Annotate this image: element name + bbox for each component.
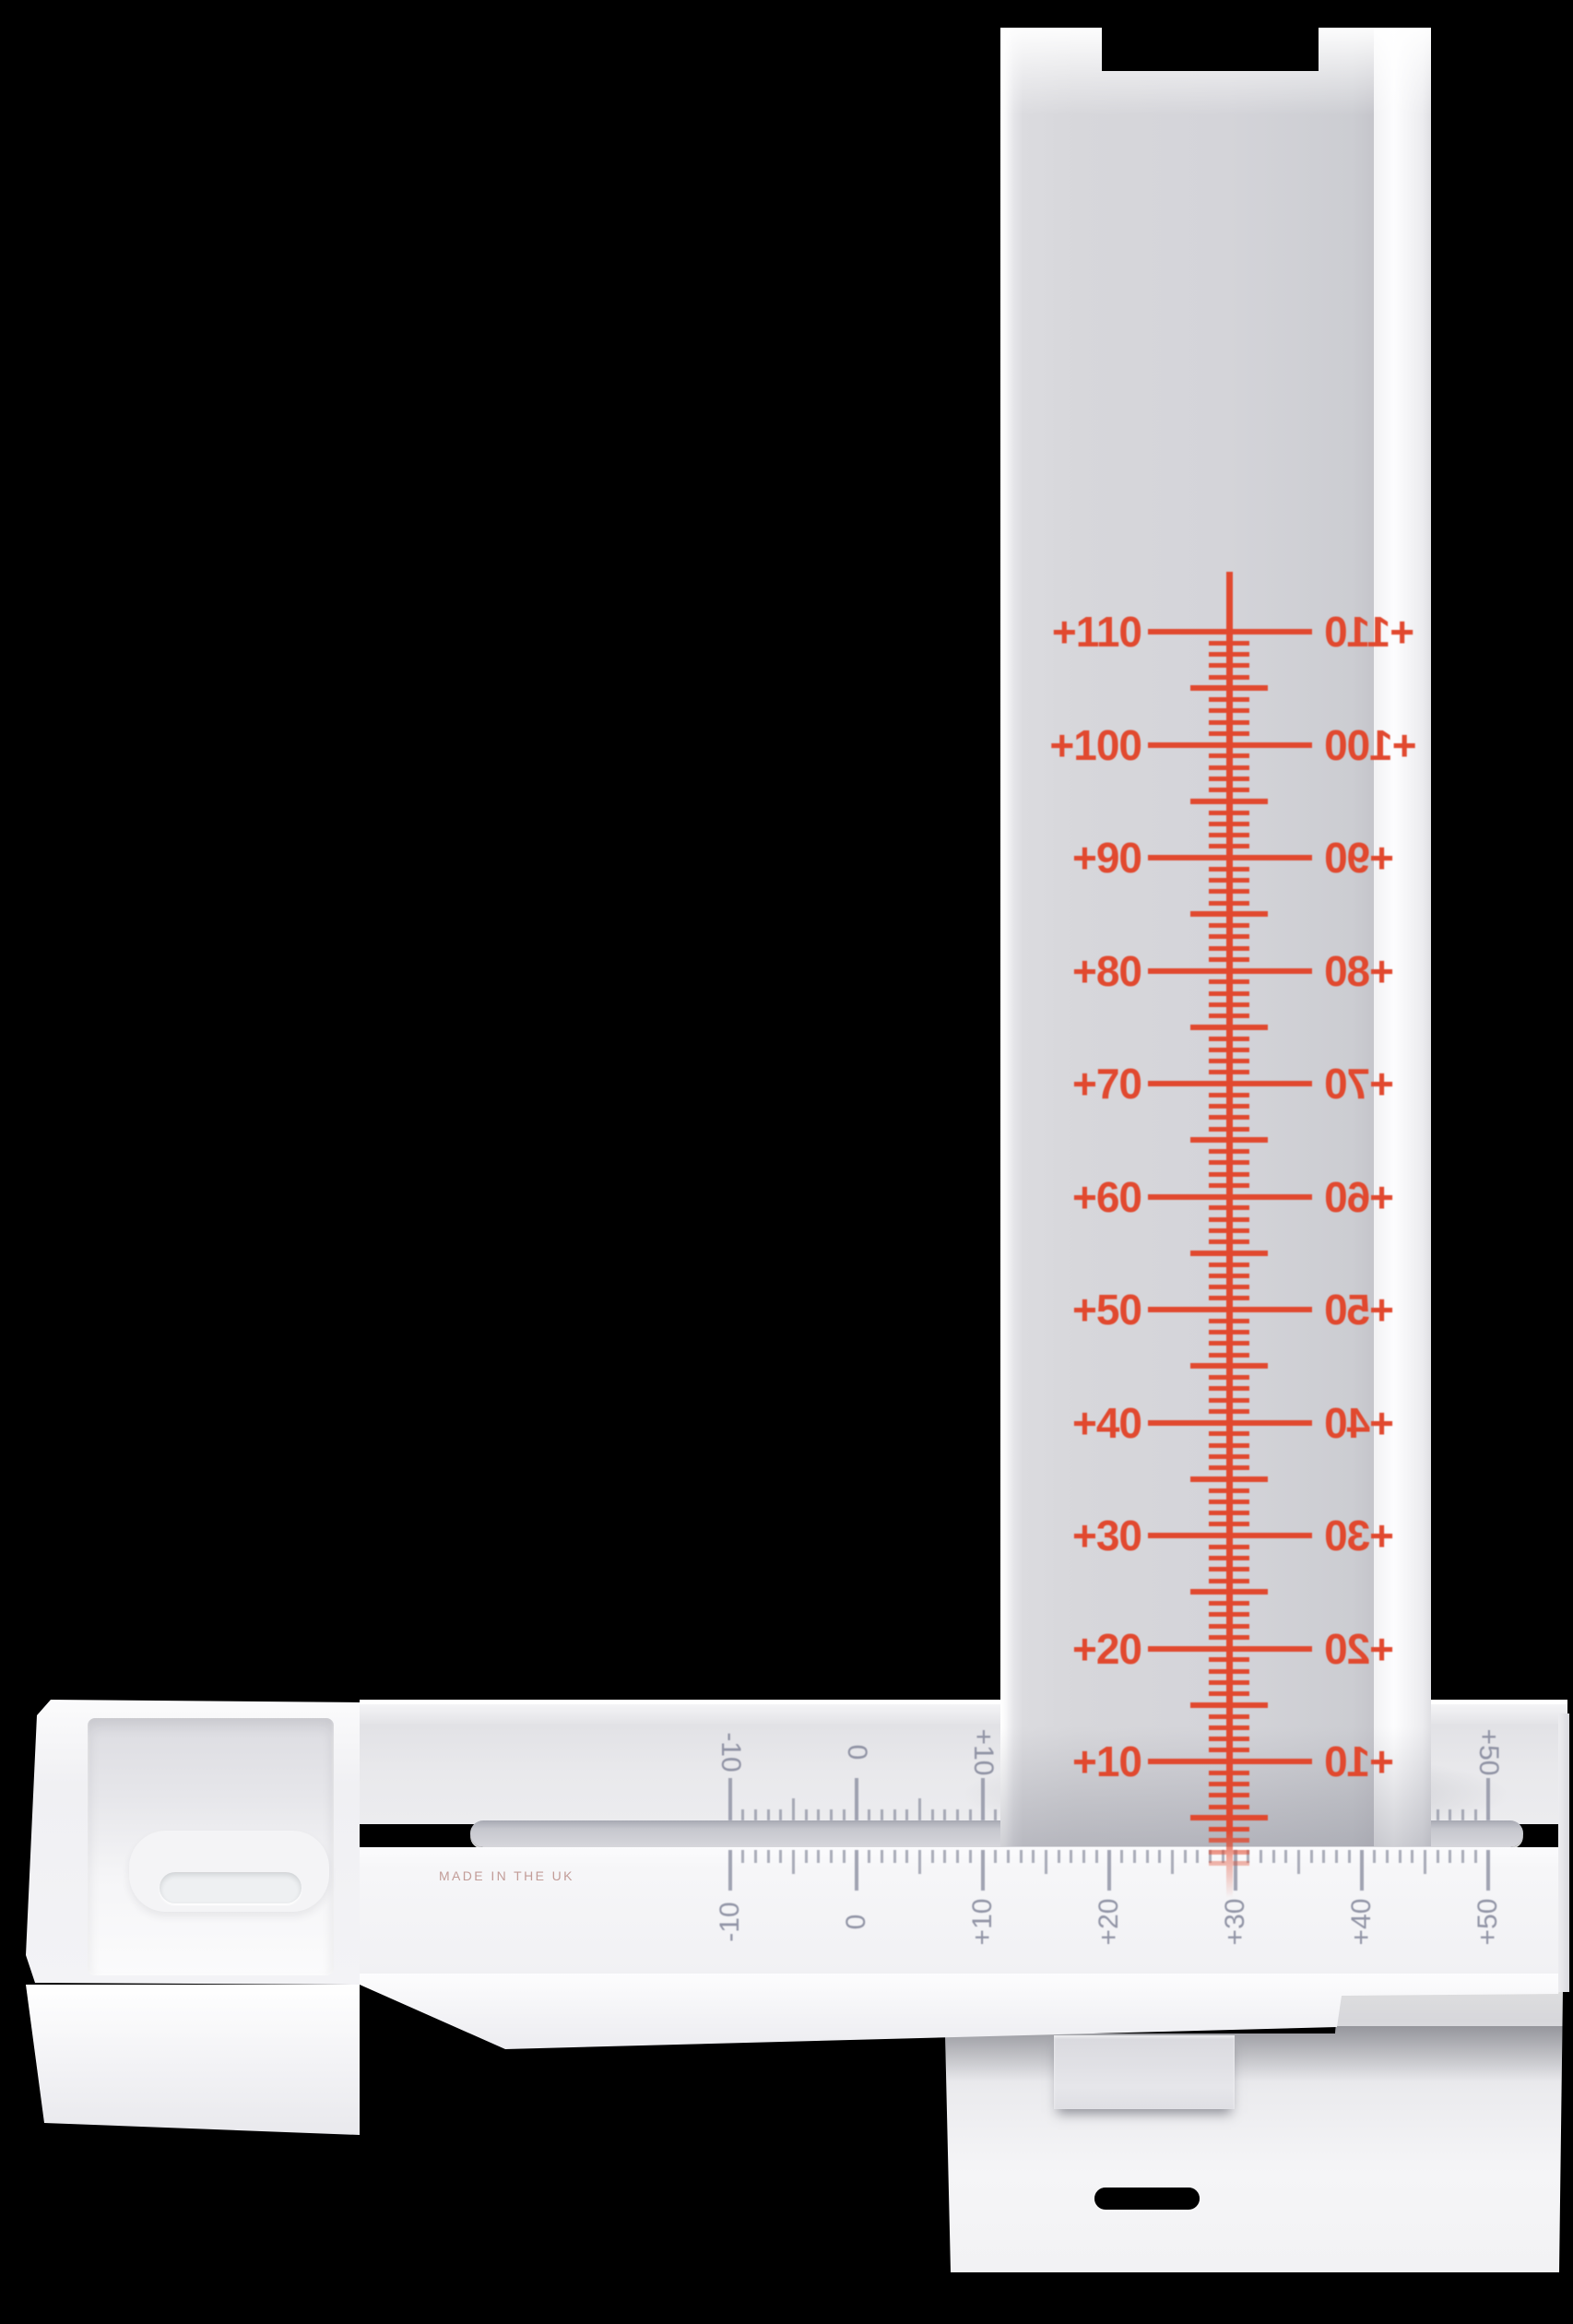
scale-tick xyxy=(1209,753,1249,758)
scale-label-left: +100 xyxy=(1049,719,1141,771)
scale-tick xyxy=(1209,1353,1249,1358)
scale-tick xyxy=(1209,1319,1249,1323)
scale-tick xyxy=(1209,1375,1249,1380)
scale-tick xyxy=(1209,1070,1249,1074)
scale-tick xyxy=(1209,1115,1249,1120)
scale-tick xyxy=(1209,1488,1249,1493)
scale-tick xyxy=(1209,1691,1249,1696)
scale-tick xyxy=(1209,663,1249,668)
scale-tick xyxy=(1209,822,1249,826)
scale-tick xyxy=(1190,1476,1268,1482)
scale-tick xyxy=(1209,957,1249,962)
scale-tick xyxy=(1209,1612,1249,1617)
scale-tick xyxy=(1209,1228,1249,1233)
scale-tick xyxy=(1209,1037,1249,1041)
scale-label-right-mirrored: +60 xyxy=(1325,1171,1394,1223)
scale-tick xyxy=(1209,946,1249,951)
scale-tick xyxy=(1209,1454,1249,1459)
scale-tick xyxy=(1190,685,1268,691)
scale-tick xyxy=(1190,1251,1268,1256)
scale-tick xyxy=(1209,1127,1249,1132)
scale-tick xyxy=(1209,1850,1249,1855)
scale-tick xyxy=(1209,1149,1249,1154)
scale-major-line xyxy=(1148,1533,1312,1538)
scale-tick xyxy=(1209,1556,1249,1560)
scale-tick xyxy=(1209,1093,1249,1097)
scale-tick xyxy=(1190,1137,1268,1143)
scale-label-right-mirrored: +90 xyxy=(1325,832,1394,883)
scale-major-line xyxy=(1148,1420,1312,1426)
scale-tick xyxy=(1209,765,1249,770)
scale-tick xyxy=(1209,833,1249,837)
scale-label-left: +20 xyxy=(1072,1623,1141,1675)
scale-label-left: +40 xyxy=(1072,1397,1141,1449)
scale-tick xyxy=(1209,878,1249,883)
scale-tick xyxy=(1209,1296,1249,1300)
scale-label-left: +50 xyxy=(1072,1284,1141,1335)
scale-tick xyxy=(1209,1861,1249,1866)
scale-tick xyxy=(1209,1341,1249,1346)
scale-tick xyxy=(1190,1363,1268,1369)
scale-tick xyxy=(1209,697,1249,702)
scale-major-line xyxy=(1148,629,1312,634)
scale-tick xyxy=(1209,1239,1249,1244)
scale-tick xyxy=(1209,1827,1249,1832)
scale-label-right-mirrored: +10 xyxy=(1325,1736,1394,1787)
scale-major-line xyxy=(1148,1081,1312,1086)
photo-scene: -100+10+20+30+40+50 MADE IN THE UK -100+… xyxy=(0,0,1573,2324)
scale-tick xyxy=(1209,708,1249,713)
scale-tick xyxy=(1209,1601,1249,1606)
scale-tick xyxy=(1209,1443,1249,1448)
scale-tick xyxy=(1209,901,1249,906)
scale-label-right-mirrored: +80 xyxy=(1325,945,1394,997)
scale-tick xyxy=(1209,889,1249,894)
scale-major-line xyxy=(1148,855,1312,860)
scale-tick xyxy=(1209,1771,1249,1775)
scale-tick xyxy=(1209,1398,1249,1403)
scale-label-left: +70 xyxy=(1072,1058,1141,1109)
scale-tick xyxy=(1190,1702,1268,1708)
scale-tick xyxy=(1209,1172,1249,1177)
scale-tick xyxy=(1209,979,1249,984)
scale-tick xyxy=(1209,675,1249,680)
scale-tick xyxy=(1209,1714,1249,1719)
scale-tick xyxy=(1209,1104,1249,1109)
scale-tick xyxy=(1209,1205,1249,1210)
scale-tick xyxy=(1209,867,1249,871)
scale-tick xyxy=(1209,1465,1249,1470)
scale-label-right-mirrored: +40 xyxy=(1325,1397,1394,1449)
scale-tick xyxy=(1190,1589,1268,1595)
scale-tick xyxy=(1209,1500,1249,1504)
scale-label-left: +80 xyxy=(1072,945,1141,997)
scale-tick xyxy=(1209,1285,1249,1289)
scale-tick xyxy=(1209,1838,1249,1843)
scale-label-right-mirrored: +100 xyxy=(1325,719,1417,771)
scale-tick xyxy=(1209,991,1249,996)
scale-tick xyxy=(1209,1579,1249,1583)
scale-tick xyxy=(1209,1409,1249,1414)
scale-tick xyxy=(1209,1793,1249,1797)
scale-tick xyxy=(1209,1160,1249,1165)
scale-tick xyxy=(1209,1782,1249,1786)
scale-tick xyxy=(1209,777,1249,781)
scale-major-line xyxy=(1148,1307,1312,1312)
scale-tick xyxy=(1209,788,1249,792)
column-scale-layer: +110+110+100+100+90+90+80+80+70+70+60+60… xyxy=(0,0,1573,2324)
scale-tick xyxy=(1209,1059,1249,1063)
scale-tick xyxy=(1209,1217,1249,1222)
scale-tick xyxy=(1190,911,1268,917)
scale-tick xyxy=(1209,1737,1249,1741)
scale-label-right-mirrored: +30 xyxy=(1325,1510,1394,1561)
scale-tick xyxy=(1209,1263,1249,1267)
scale-tick xyxy=(1209,1635,1249,1640)
scale-tick xyxy=(1209,1657,1249,1662)
scale-major-line xyxy=(1148,742,1312,748)
scale-tick xyxy=(1190,1025,1268,1030)
scale-tick xyxy=(1209,811,1249,815)
scale-label-left: +110 xyxy=(1052,606,1141,658)
scale-tick xyxy=(1209,1545,1249,1549)
scale-label-left: +60 xyxy=(1072,1171,1141,1223)
scale-tick xyxy=(1209,1002,1249,1007)
scale-tick xyxy=(1209,1048,1249,1052)
scale-tick xyxy=(1190,799,1268,804)
scale-tick xyxy=(1209,1274,1249,1278)
scale-label-left: +90 xyxy=(1072,832,1141,883)
scale-label-right-mirrored: +20 xyxy=(1325,1623,1394,1675)
scale-label-left: +30 xyxy=(1072,1510,1141,1561)
scale-major-line xyxy=(1148,1759,1312,1764)
scale-tick xyxy=(1209,1680,1249,1685)
scale-label-right-mirrored: +50 xyxy=(1325,1284,1394,1335)
scale-tick xyxy=(1209,1624,1249,1629)
scale-tick xyxy=(1209,641,1249,646)
scale-tick xyxy=(1209,1522,1249,1526)
scale-tick xyxy=(1209,1330,1249,1334)
scale-tick xyxy=(1209,1511,1249,1515)
scale-tick xyxy=(1209,1669,1249,1674)
scale-tick xyxy=(1209,1567,1249,1571)
scale-tick xyxy=(1209,1725,1249,1730)
scale-major-line xyxy=(1148,1646,1312,1652)
scale-tick xyxy=(1209,1748,1249,1752)
scale-label-right-mirrored: +110 xyxy=(1325,606,1414,658)
scale-tick xyxy=(1209,1386,1249,1391)
scale-tick xyxy=(1209,1014,1249,1018)
scale-tick xyxy=(1190,1815,1268,1820)
scale-major-line xyxy=(1148,968,1312,974)
scale-tick xyxy=(1209,1805,1249,1809)
scale-tick xyxy=(1209,844,1249,848)
scale-tick xyxy=(1209,731,1249,736)
scale-label-right-mirrored: +70 xyxy=(1325,1058,1394,1109)
scale-tick xyxy=(1209,652,1249,657)
scale-tick xyxy=(1209,934,1249,939)
scale-tick xyxy=(1209,1183,1249,1188)
scale-tick xyxy=(1209,923,1249,928)
scale-label-left: +10 xyxy=(1072,1736,1141,1787)
scale-tick xyxy=(1209,1431,1249,1436)
scale-major-line xyxy=(1148,1194,1312,1200)
scale-tick xyxy=(1209,720,1249,725)
